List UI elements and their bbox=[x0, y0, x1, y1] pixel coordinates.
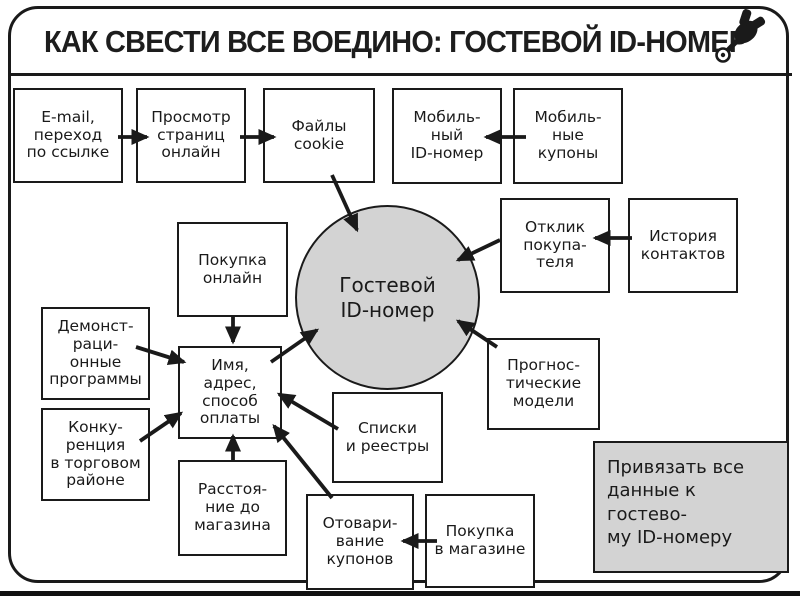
box-contact-history: История контактов bbox=[628, 198, 738, 293]
box-in-store-purchase: Покупка в магазине bbox=[425, 494, 535, 588]
box-distance-to-store: Расстоя- ние до магазина bbox=[178, 460, 287, 556]
note-link-all-data: Привязать все данные к гостево- му ID-но… bbox=[593, 441, 789, 573]
page-title: КАК СВЕСТИ ВСЕ ВОЕДИНО: ГОСТЕВОЙ ID-НОМЕ… bbox=[44, 24, 747, 60]
box-mobile-id: Мобиль- ный ID-номер bbox=[392, 88, 502, 184]
box-name-address-payment: Имя, адрес, способ оплаты bbox=[178, 346, 282, 439]
box-cookie-files: Файлы cookie bbox=[263, 88, 375, 183]
box-predictive-models: Прогнос- тические модели bbox=[487, 338, 600, 430]
box-customer-response: Отклик покупа- теля bbox=[500, 198, 610, 293]
box-competition-in-area: Конку- ренция в торговом районе bbox=[41, 408, 150, 501]
title-underline bbox=[8, 73, 792, 76]
box-demo-programs: Демонст- раци- онные программы bbox=[41, 307, 150, 400]
pushpin-icon bbox=[700, 6, 772, 64]
box-mobile-coupons: Мобиль- ные купоны bbox=[513, 88, 623, 184]
box-lists-registers: Списки и реестры bbox=[332, 392, 443, 483]
box-page-views-online: Просмотр страниц онлайн bbox=[136, 88, 246, 183]
box-coupon-redemption: Отовари- вание купонов bbox=[306, 494, 414, 590]
box-online-purchase: Покупка онлайн bbox=[177, 222, 288, 317]
box-email-link: E-mail, переход по ссылке bbox=[13, 88, 123, 183]
guest-id-circle: Гостевой ID-номер bbox=[295, 205, 480, 390]
page-bottom-edge bbox=[0, 591, 800, 596]
